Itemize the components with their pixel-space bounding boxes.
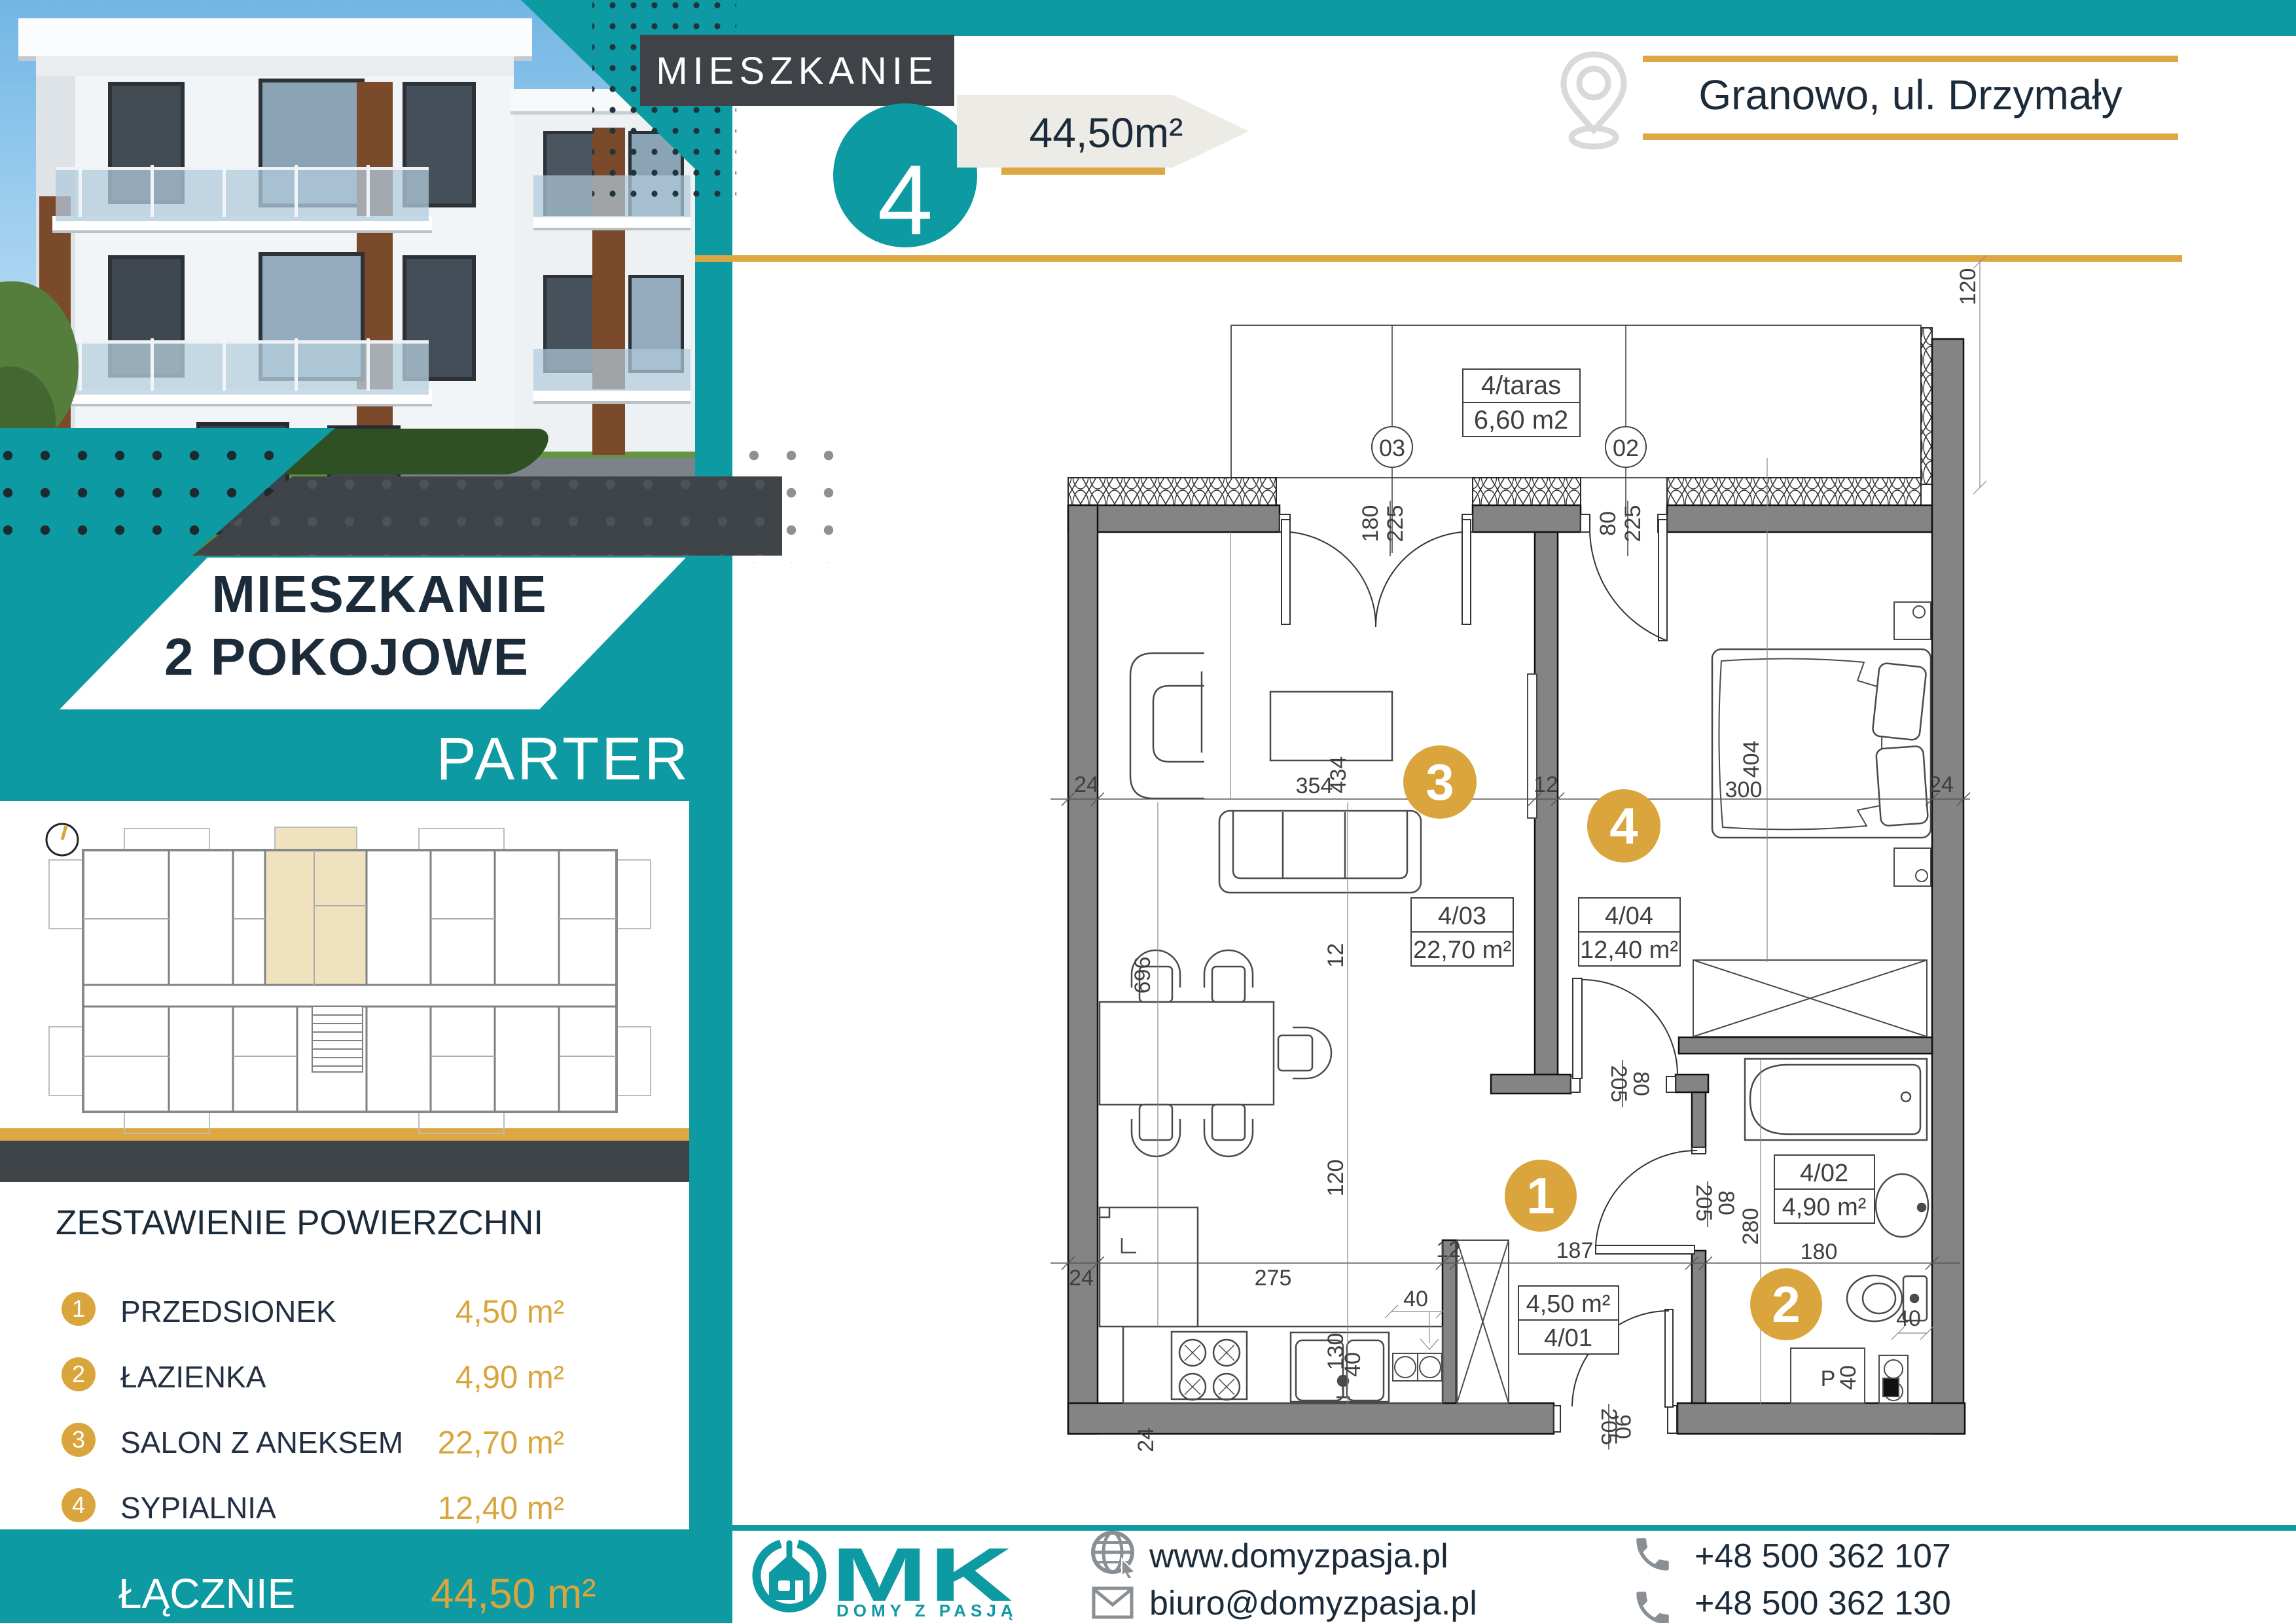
svg-text:24: 24 [1134,1427,1158,1452]
svg-text:225: 225 [1621,505,1645,543]
svg-text:180: 180 [1801,1240,1838,1264]
svg-text:4,50 m²: 4,50 m² [1526,1291,1611,1318]
svg-text:12: 12 [1323,943,1348,968]
svg-text:80: 80 [1596,511,1621,536]
svg-text:40: 40 [1896,1306,1921,1331]
svg-text:180: 180 [1358,505,1383,543]
svg-text:24: 24 [1069,1266,1094,1291]
svg-text:12,40 m²: 12,40 m² [1580,936,1678,964]
svg-text:404: 404 [1739,741,1764,778]
svg-text:205: 205 [1691,1185,1716,1222]
svg-text:22,70 m²: 22,70 m² [1413,936,1511,964]
svg-text:4/02: 4/02 [1800,1160,1848,1187]
svg-text:696: 696 [1130,957,1155,994]
svg-text:12: 12 [1534,772,1558,797]
svg-text:280: 280 [1738,1208,1763,1245]
svg-text:4/01: 4/01 [1544,1325,1592,1352]
svg-text:40: 40 [1836,1365,1861,1390]
svg-text:80: 80 [1713,1190,1738,1215]
svg-text:40: 40 [1403,1287,1428,1311]
svg-text:24: 24 [1929,772,1954,797]
svg-text:225: 225 [1383,505,1408,543]
svg-text:24: 24 [1074,772,1099,797]
svg-text:205: 205 [1606,1065,1631,1103]
svg-text:80: 80 [1628,1071,1653,1096]
svg-text:40: 40 [1340,1352,1365,1377]
svg-text:4/03: 4/03 [1438,902,1486,930]
svg-text:205: 205 [1596,1408,1621,1446]
svg-text:P: P [1821,1366,1836,1391]
svg-text:6,60 m2: 6,60 m2 [1474,406,1569,435]
svg-text:4: 4 [1609,797,1638,855]
svg-text:4,90 m²: 4,90 m² [1782,1194,1867,1221]
svg-text:12: 12 [1436,1238,1461,1262]
svg-text:4/04: 4/04 [1605,902,1653,930]
svg-text:4/taras: 4/taras [1481,371,1561,400]
svg-text:3: 3 [1426,753,1454,811]
svg-text:02: 02 [1613,435,1639,461]
svg-text:434: 434 [1326,757,1351,794]
svg-text:120: 120 [1956,268,1981,306]
svg-text:2: 2 [1772,1275,1800,1333]
svg-text:1: 1 [1526,1167,1554,1224]
svg-text:03: 03 [1379,435,1405,461]
svg-text:275: 275 [1255,1266,1292,1291]
svg-text:187: 187 [1556,1238,1594,1263]
svg-text:300: 300 [1725,777,1763,802]
svg-text:120: 120 [1323,1160,1348,1197]
